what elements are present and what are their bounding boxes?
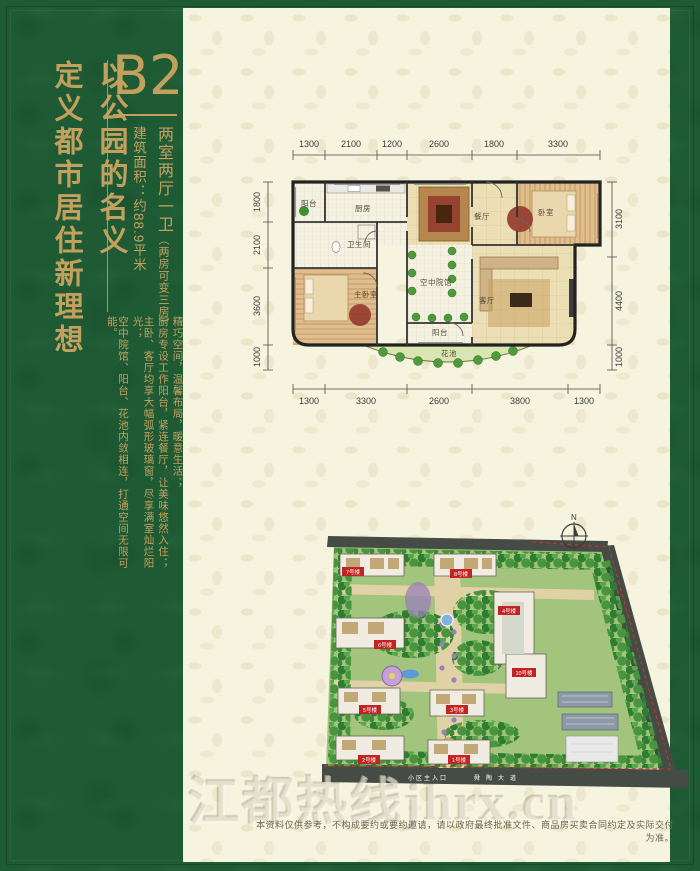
siteplan-drawing: 7号楼 8号楼 4号楼 6号楼 10号楼 5号楼 3号楼 2号楼 1号楼 小区主…: [322, 512, 690, 807]
unit-type-col: 两室两厅一卫（两房可变三房）: [151, 126, 175, 346]
room-balcony-top: 阳台: [301, 198, 317, 208]
svg-text:4号楼: 4号楼: [502, 607, 517, 615]
svg-text:5号楼: 5号楼: [363, 706, 378, 714]
disclaimer-text: 本资料仅供参考，不构成要约或要约邀请，请以政府最终批准文件、商品房买卖合同约定及…: [250, 818, 674, 844]
siteplan-parking: [558, 692, 618, 762]
svg-text:3号楼: 3号楼: [450, 706, 465, 714]
svg-text:1800: 1800: [252, 192, 262, 212]
description-col-1: 精巧空间，温馨布局，暖意生活；: [171, 316, 182, 588]
svg-text:1000: 1000: [252, 347, 262, 367]
svg-text:6号楼: 6号楼: [378, 641, 393, 649]
svg-text:8号楼: 8号楼: [454, 570, 469, 578]
svg-text:10号楼: 10号楼: [515, 669, 533, 677]
svg-text:1300: 1300: [299, 396, 319, 406]
room-master: 主卧室: [354, 289, 378, 299]
svg-text:3300: 3300: [356, 396, 376, 406]
room-dining: 餐厅: [474, 212, 490, 221]
room-kitchen: 厨房: [355, 203, 371, 213]
room-living: 客厅: [479, 295, 495, 305]
svg-text:7号楼: 7号楼: [346, 568, 361, 576]
room-bath: 卫生间: [347, 239, 371, 249]
floorplan-drawing: 阳台 厨房 卫生间 餐厅 卧室 主卧室 空中院馆 客厅 阳台 花池 1300 2…: [248, 127, 628, 427]
room-bedroom: 卧室: [538, 207, 554, 217]
svg-text:2600: 2600: [429, 139, 449, 149]
description-col-4: 空中院馆、阳台、花池内敛相连，打通空间无限可能。: [106, 316, 128, 588]
svg-text:1200: 1200: [382, 139, 402, 149]
svg-text:3300: 3300: [548, 139, 568, 149]
unit-label: B2: [112, 46, 183, 105]
svg-text:1号楼: 1号楼: [452, 756, 467, 764]
svg-text:1300: 1300: [574, 396, 594, 406]
svg-text:2600: 2600: [429, 396, 449, 406]
road-name-label: 舜陶大道: [474, 774, 522, 782]
description: 精巧空间，温馨布局，暖意生活； 厨房专设工作阳台，紧连餐厅，让美味悠然入住； 主…: [94, 316, 186, 588]
room-flowerbed: 花池: [441, 348, 457, 358]
vertical-divider: [107, 60, 108, 312]
svg-text:2100: 2100: [341, 139, 361, 149]
svg-text:4400: 4400: [614, 291, 624, 311]
room-courtyard: 空中院馆: [420, 277, 452, 287]
slogan-line-2: 定义都市居住新理想: [45, 60, 87, 390]
unit-type: 两室两厅一卫: [155, 126, 172, 234]
svg-text:3100: 3100: [614, 209, 624, 229]
room-balcony-bottom: 阳台: [432, 327, 448, 337]
svg-text:2100: 2100: [252, 235, 262, 255]
svg-text:2号楼: 2号楼: [362, 756, 377, 764]
svg-text:1000: 1000: [614, 347, 624, 367]
road-entrance-label: 小区主入口: [408, 774, 448, 782]
compass-n-label: N: [571, 513, 577, 522]
unit-area: 建筑面积：约88.9平米: [128, 126, 148, 346]
svg-text:1800: 1800: [484, 139, 504, 149]
poster-page: 以公园的名义 定义都市居住新理想 B2 两室两厅一卫（两房可变三房） 建筑面积：…: [0, 0, 700, 871]
svg-text:3800: 3800: [510, 396, 530, 406]
unit-label-underline: [113, 114, 177, 116]
svg-text:1300: 1300: [299, 139, 319, 149]
svg-text:3600: 3600: [252, 296, 262, 316]
unit-subtitle: 两室两厅一卫（两房可变三房） 建筑面积：约88.9平米: [114, 126, 178, 346]
description-col-3: 主卧、客厅均享大幅弧形玻璃窗，尽享满室灿烂阳光；: [131, 316, 153, 588]
description-col-2: 厨房专设工作阳台，紧连餐厅，让美味悠然入住；: [157, 316, 168, 588]
